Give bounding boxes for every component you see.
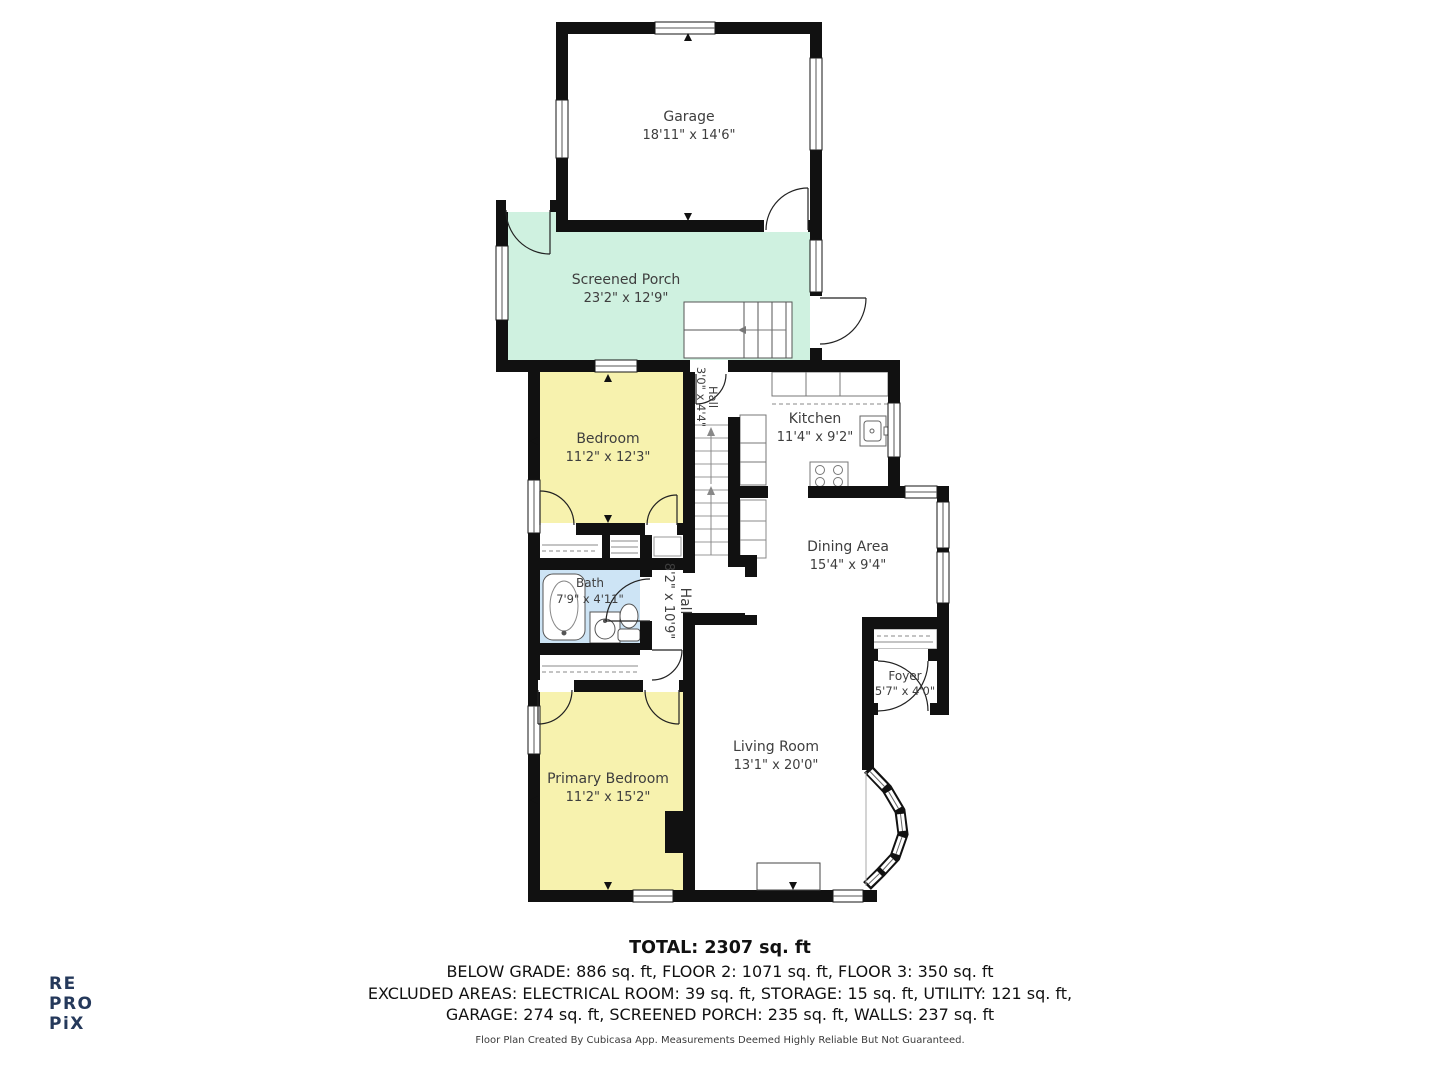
garage-window-top (655, 22, 715, 34)
toilet (618, 604, 640, 641)
summary-line-1: BELOW GRADE: 886 sq. ft, FLOOR 2: 1071 s… (0, 961, 1440, 983)
svg-text:Screened Porch: Screened Porch (572, 272, 681, 288)
repropix-logo: RE PRO PiX (49, 974, 94, 1034)
svg-text:Foyer: Foyer (888, 669, 921, 683)
porch-door-right (820, 298, 866, 344)
svg-text:18'11" x 14'6": 18'11" x 14'6" (643, 128, 736, 143)
svg-text:13'1" x 20'0": 13'1" x 20'0" (734, 758, 819, 773)
area-summary: TOTAL: 2307 sq. ft BELOW GRADE: 886 sq. … (0, 938, 1440, 1046)
floor-plan: Garage 18'11" x 14'6" Screened Porch 23'… (0, 0, 1440, 1080)
living-window-bottom (833, 890, 863, 902)
bedroom-window-top (595, 360, 637, 372)
svg-text:Bedroom: Bedroom (576, 431, 639, 447)
disclaimer: Floor Plan Created By Cubicasa App. Meas… (0, 1035, 1440, 1046)
svg-text:Hall: Hall (677, 588, 693, 615)
summary-line-2: EXCLUDED AREAS: ELECTRICAL ROOM: 39 sq. … (0, 983, 1440, 1005)
garage-window-right (810, 58, 822, 150)
svg-text:Garage: Garage (663, 109, 714, 125)
svg-text:Living Room: Living Room (733, 739, 819, 755)
logo-line-3: PiX (49, 1014, 94, 1034)
svg-text:23'2" x 12'9": 23'2" x 12'9" (584, 291, 669, 306)
living-label: Living Room 13'1" x 20'0" (733, 739, 819, 773)
svg-text:11'4" x 9'2": 11'4" x 9'2" (777, 430, 853, 445)
bedroom-fill (528, 360, 695, 535)
primary-window-bottom (633, 890, 673, 902)
dining-window-top (905, 486, 937, 498)
svg-text:8'2" x 10'9": 8'2" x 10'9" (661, 563, 676, 639)
porch-staircase (684, 302, 792, 358)
closet-door-hall (652, 650, 682, 680)
dining-label: Dining Area 15'4" x 9'4" (807, 539, 889, 573)
bay-window (866, 769, 903, 886)
main-staircase (695, 425, 728, 555)
logo-line-1: RE (49, 974, 94, 994)
primary-closet (542, 666, 638, 672)
svg-text:11'2" x 15'2": 11'2" x 15'2" (566, 790, 651, 805)
dining-window-right-2 (937, 552, 949, 603)
kitchen-label: Kitchen 11'4" x 9'2" (777, 411, 853, 445)
hall-mini-closet (654, 537, 681, 556)
garage-label: Garage 18'11" x 14'6" (643, 109, 736, 143)
bedroom-window-left (528, 480, 540, 533)
kitchen-window-right (888, 403, 900, 457)
bedroom-closet (542, 541, 638, 553)
kitchen-sink (860, 416, 891, 446)
total-area: TOTAL: 2307 sq. ft (0, 938, 1440, 958)
bathroom-sink (590, 612, 620, 643)
svg-text:Kitchen: Kitchen (789, 411, 842, 427)
chimney (665, 811, 683, 853)
stove (810, 462, 848, 490)
svg-text:15'4" x 9'4": 15'4" x 9'4" (810, 558, 886, 573)
svg-text:Primary Bedroom: Primary Bedroom (547, 771, 669, 787)
svg-text:5'7" x 4'0": 5'7" x 4'0" (875, 684, 935, 698)
hall-upper-label: Hall 3'0" x 4'4" (694, 367, 720, 427)
floor-plan-page: Garage 18'11" x 14'6" Screened Porch 23'… (0, 0, 1440, 1080)
logo-line-2: PRO (49, 994, 94, 1014)
dining-closet (866, 629, 937, 649)
dining-window-right-1 (937, 502, 949, 548)
porch-window-left (496, 246, 508, 320)
summary-line-3: GARAGE: 274 sq. ft, SCREENED PORCH: 235 … (0, 1004, 1440, 1026)
svg-text:3'0" x 4'4": 3'0" x 4'4" (694, 367, 708, 427)
svg-text:Dining Area: Dining Area (807, 539, 889, 555)
pantry-closet (740, 500, 766, 558)
svg-text:Bath: Bath (576, 576, 604, 590)
svg-text:7'9" x 4'11": 7'9" x 4'11" (556, 592, 624, 606)
svg-text:11'2" x 12'3": 11'2" x 12'3" (566, 450, 651, 465)
porch-window-right (810, 240, 822, 292)
garage-window-left (556, 100, 568, 158)
fireplace (757, 863, 820, 890)
